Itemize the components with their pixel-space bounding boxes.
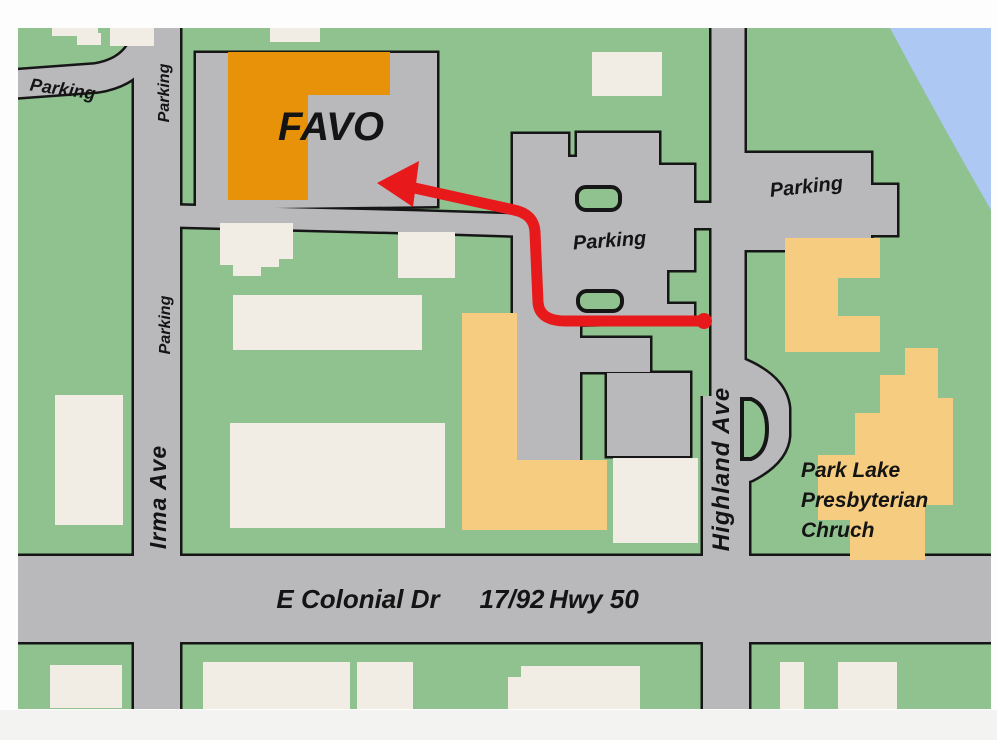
- label-hwy-name: Hwy 50: [549, 584, 639, 614]
- label-e-colonial-dr: E Colonial Dr: [276, 584, 441, 614]
- label-hwy-number: 17/92: [479, 584, 545, 614]
- median-island: [742, 399, 767, 459]
- label-church-2: Presbyterian: [801, 489, 928, 512]
- label-favo: FAVO: [278, 105, 384, 149]
- map-page: Parking Parking Parking Irma Ave FAVO Pa…: [0, 0, 997, 740]
- campus-map: Parking Parking Parking Irma Ave FAVO Pa…: [0, 0, 997, 740]
- page-bottom-margin: [0, 710, 997, 740]
- label-church-3: Chruch: [801, 519, 875, 542]
- label-highland-ave: Highland Ave: [708, 387, 735, 551]
- label-irma-ave: Irma Ave: [145, 445, 171, 549]
- label-parking-irma-upper: Parking: [156, 63, 173, 122]
- label-parking-irma-lower: Parking: [157, 295, 174, 354]
- label-church-1: Park Lake: [801, 459, 901, 482]
- gray-building: [607, 373, 690, 456]
